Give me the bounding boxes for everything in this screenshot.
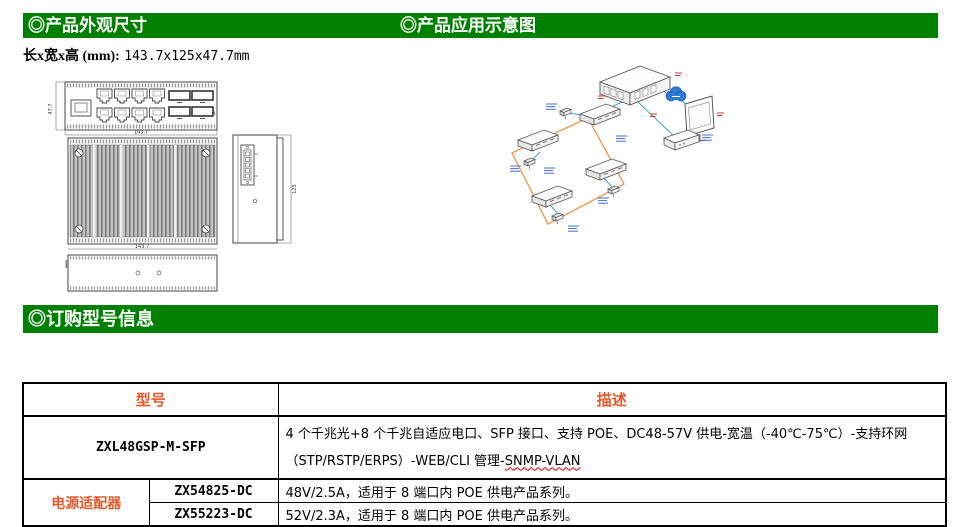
adapter-1-description: 48V/2.5A，适用于 8 端口内 POE 供电产品系列。	[278, 479, 946, 503]
top-view: 143.7	[68, 138, 217, 250]
table-header-row: 型号 描述	[23, 383, 946, 416]
adapter-1-model: ZX54825-DC	[149, 479, 278, 503]
product-row: ZXL48GSP-M-SFP 4 个千兆光+8 个千兆自适应电口、SFP 接口、…	[23, 416, 946, 479]
product-model: ZXL48GSP-M-SFP	[23, 416, 278, 479]
monitor-label	[717, 113, 724, 116]
uplink-label	[598, 96, 605, 99]
poe-switch-1	[580, 104, 620, 125]
datasheet-page: { "colors": { "header_bg": "#008000", "h…	[0, 0, 954, 525]
front-width-dim: 143.7	[134, 130, 148, 136]
product-description: 4 个千兆光+8 个千兆自适应电口、SFP 接口、支持 POE、DC48-57V…	[278, 416, 946, 479]
dimension-drawings: 47.7 143.7 143.7	[25, 68, 315, 298]
switch-3-label	[598, 198, 609, 203]
model-column-header: 型号	[23, 383, 278, 416]
poe-switch-4	[532, 186, 572, 207]
overall-dimensions: 长x宽x高 (mm): 143.7x125x47.7mm	[23, 45, 250, 65]
heatsink-fins	[70, 145, 215, 237]
front-height-dim: 47.7	[48, 103, 54, 114]
appearance-section-title: ◎产品外观尺寸	[28, 13, 147, 38]
top-width-dim: 143.7	[135, 244, 149, 250]
camera-1	[560, 108, 571, 119]
camera-2	[524, 158, 535, 169]
switch-4-label	[568, 226, 579, 231]
core-switch	[600, 66, 670, 105]
product-description-line1: 4 个千兆光+8 个千兆自适应电口、SFP 接口、支持 POE、DC48-57V…	[286, 421, 939, 448]
product-description-line2: （STP/RSTP/ERPS）-WEB/CLI 管理-SNMP-VLAN	[286, 448, 939, 475]
console-port	[71, 100, 91, 116]
poe-switch-2	[518, 130, 558, 151]
adapter-row-2: ZX55223-DC 52V/2.3A，适用于 8 端口内 POE 供电产品系列…	[23, 503, 946, 527]
core-switch-power-label	[675, 73, 682, 76]
camera-3	[608, 186, 619, 197]
bottom-view	[66, 255, 218, 291]
side-depth-dim: 125	[292, 184, 298, 194]
adapter-2-model: ZX55223-DC	[149, 503, 278, 527]
nvr-label	[702, 135, 713, 140]
nvr	[664, 130, 699, 150]
camera-1-label	[546, 104, 557, 109]
camera-4	[552, 213, 563, 224]
description-line2-flagged: SNMP-VLAN	[505, 454, 581, 469]
application-section-title: ◎产品应用示意图	[400, 13, 536, 38]
ordering-table: 型号 描述 ZXL48GSP-M-SFP 4 个千兆光+8 个千兆自适应电口、S…	[22, 382, 947, 527]
adapter-category-label: 电源适配器	[23, 479, 149, 526]
application-diagram	[488, 56, 808, 246]
section-bar-ordering: ◎订购型号信息	[23, 305, 938, 333]
adapter-row-1: 电源适配器 ZX54825-DC 48V/2.5A，适用于 8 端口内 POE …	[23, 479, 946, 503]
fiber-link-label	[650, 114, 657, 117]
front-view: 47.7 143.7	[48, 82, 217, 136]
adapter-2-description: 52V/2.3A，适用于 8 端口内 POE 供电产品系列。	[278, 503, 946, 527]
switch-2-label	[544, 168, 555, 173]
description-column-header: 描述	[278, 383, 946, 416]
section-bar-top: ◎产品外观尺寸 ◎产品应用示意图	[23, 13, 938, 38]
dimensions-value: 143.7x125x47.7mm	[124, 49, 249, 64]
description-line2-prefix: （STP/RSTP/ERPS）-WEB/CLI 管理-	[286, 454, 505, 469]
side-view: 125	[233, 135, 298, 243]
ordering-section-title: ◎订购型号信息	[28, 305, 154, 333]
dimensions-label: 长x宽x高 (mm):	[23, 49, 120, 64]
switch-1-label	[616, 136, 627, 141]
